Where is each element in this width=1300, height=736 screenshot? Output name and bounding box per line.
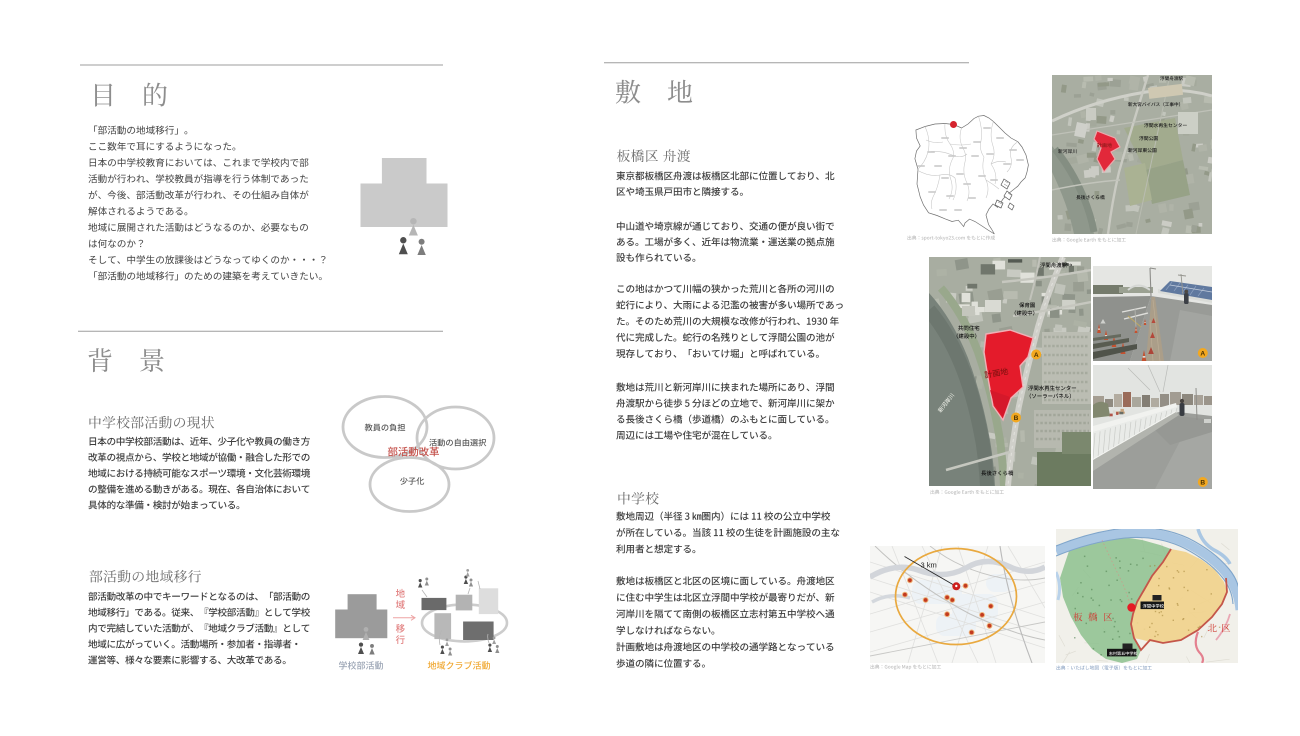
svg-text:A: A [1200, 350, 1205, 357]
svg-text:3 km: 3 km [921, 561, 937, 570]
svg-text:B: B [1014, 415, 1019, 422]
svg-text:B: B [1200, 479, 1205, 486]
svg-text:A: A [1034, 352, 1039, 359]
